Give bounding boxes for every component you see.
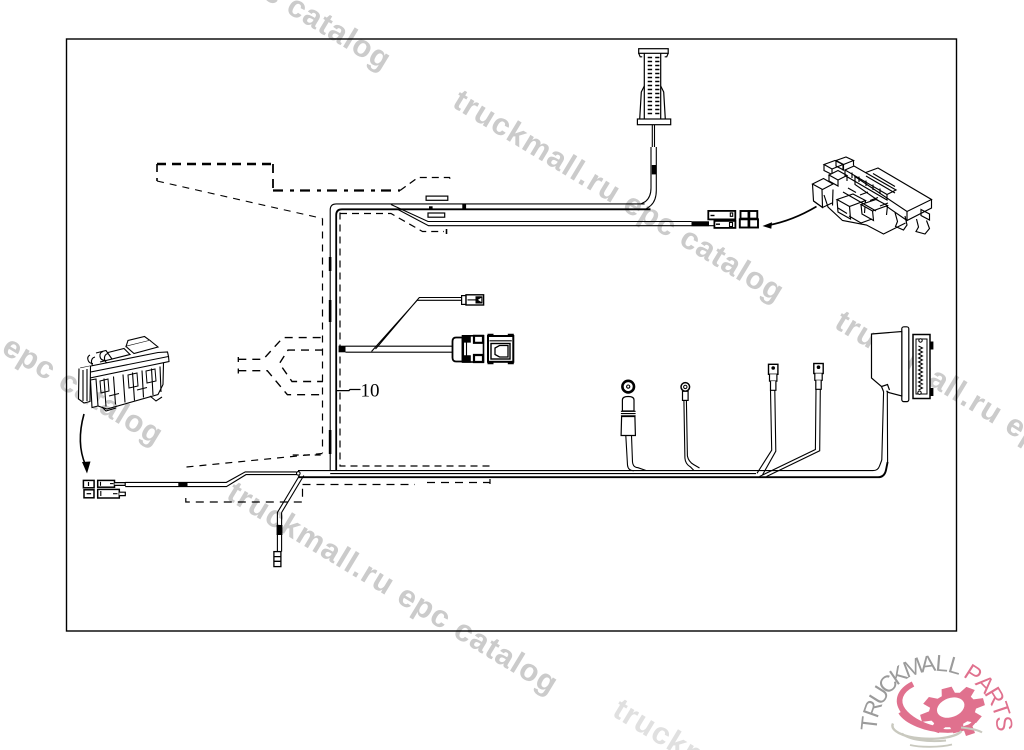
svg-text:10: 10 (361, 381, 380, 402)
svg-text:truckmall.ru epc catalog: truckmall.ru epc catalog (447, 82, 791, 309)
svg-text:truckmall.ru epc catalog: truckmall.ru epc catalog (221, 474, 565, 701)
svg-text:S: S (991, 714, 1019, 732)
